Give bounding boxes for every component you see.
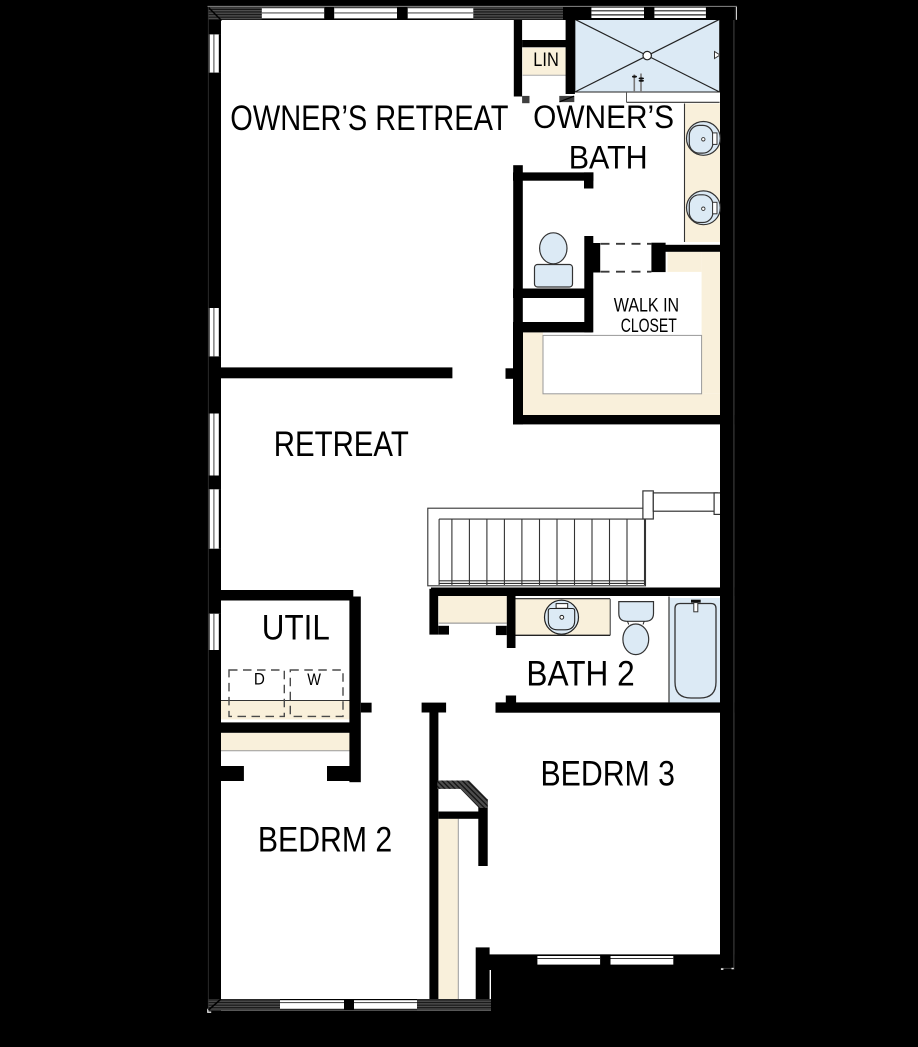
svg-text:WALK IN: WALK IN (614, 296, 679, 317)
svg-text:CLOSET: CLOSET (621, 316, 677, 337)
svg-text:BEDRM 3: BEDRM 3 (541, 754, 676, 793)
svg-text:BEDRM 2: BEDRM 2 (258, 820, 392, 859)
svg-text:UTIL: UTIL (262, 609, 330, 648)
svg-text:OWNER’S: OWNER’S (533, 99, 674, 135)
svg-text:BATH 2: BATH 2 (526, 655, 634, 694)
svg-text:RETREAT: RETREAT (274, 425, 409, 464)
svg-text:OWNER’S RETREAT: OWNER’S RETREAT (230, 99, 508, 138)
svg-text:BATH: BATH (569, 140, 648, 176)
svg-text:W: W (307, 670, 321, 689)
svg-text:D: D (254, 670, 265, 689)
svg-text:LIN: LIN (533, 50, 559, 71)
